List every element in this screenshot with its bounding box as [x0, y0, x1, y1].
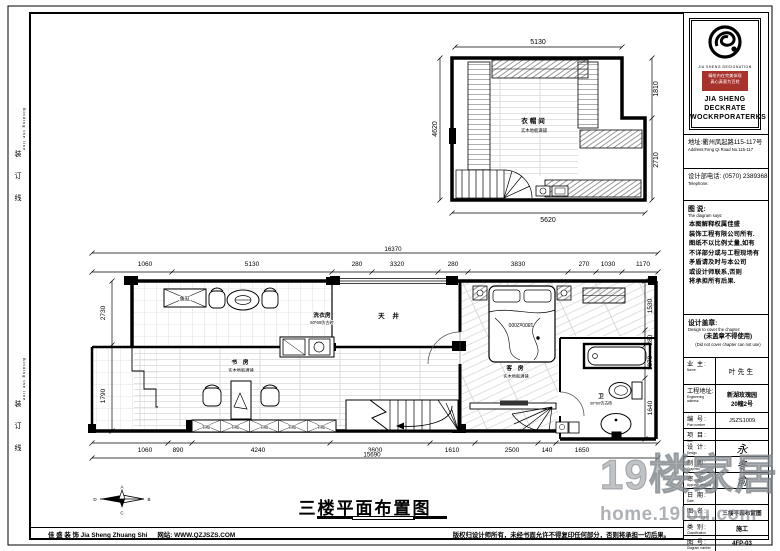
dim-label: 1170	[636, 261, 650, 268]
dim-label: 890	[173, 447, 184, 454]
address-cn: 地址:衢州凤起路115-117号	[684, 138, 768, 147]
study-label: 书 房	[231, 358, 250, 366]
logo-frame: JIA SHENG DESIGNATION 精绘内在完美体现 真心真意为百姓 J…	[689, 18, 761, 130]
bookcase-label: 书柜	[202, 424, 210, 431]
dim-label: 280	[448, 261, 459, 268]
tb-row-diagram-number: 图 号:Diagram number 4FP-03	[684, 536, 768, 551]
site-label: 工程地址:	[687, 386, 715, 395]
drawing-sheet: 衣帽间 实木地板满铺 5130 5620 4620 1810 2710	[0, 0, 780, 551]
dim-label: 2710	[653, 152, 660, 168]
tb-row-figure-name: 图 名:Name for figure 三楼平面布置图	[684, 505, 768, 521]
notes-line: 或设计师联系,否则	[684, 268, 768, 277]
compass-n: A	[120, 485, 123, 490]
dim-label: 1030	[601, 261, 616, 268]
guest-floor-label: 实木地板满铺	[503, 373, 528, 380]
phone-cn: 设计部电话: (0570) 2389368	[684, 172, 768, 181]
footer-bar: 佳 盛 装 饰 Jia Sheng Zhuang Shi 网站: WWW.QZJ…	[30, 527, 684, 540]
notes-line: 装饰工程有限公司所有.	[684, 230, 768, 239]
phone-section: 设计部电话: (0570) 2389368 Telephone:	[684, 169, 768, 201]
bookcase-label: 书柜	[231, 424, 239, 431]
sink	[601, 414, 631, 439]
bath-floor-label: 30*60仿古砖	[590, 400, 612, 406]
logo-slogan: 精绘内在完美体现 真心真意为百姓	[702, 71, 748, 91]
row-value: JSZS1009	[716, 413, 768, 428]
bookcase: 书柜 书柜 书柜 书柜 书柜	[192, 420, 336, 432]
dim-label: 5130	[245, 261, 260, 268]
north-compass: A B C D	[93, 485, 150, 516]
seal-title-cn: 设计盖章:	[684, 315, 768, 327]
scale-bar-segment	[352, 516, 415, 520]
notes-line: 不详部分或与工程现场有	[684, 249, 768, 258]
seal-note-cn: (未盖章不得使用)	[684, 332, 768, 341]
dim-label: 1530	[647, 298, 654, 313]
wardrobe-right	[580, 130, 642, 148]
notes-section: 图 说: The diagram says: 本图解释权属佳盛 装饰工程有限公司…	[684, 201, 768, 315]
notes-line: 矛盾请及时与本公司	[684, 258, 768, 267]
dim-label: 5620	[540, 217, 556, 224]
washer-counter	[280, 337, 334, 357]
footer-copyright: 版权归设计师所有，未经书面允许不得复印任何部分，否则将承担一切后果。	[453, 530, 670, 539]
dim-label: 3830	[511, 261, 526, 268]
slogan-line2: 真心真意为百姓	[702, 79, 748, 85]
guest-wardrobe	[583, 288, 625, 303]
seal-note-en: (Did not cover chapter can not use)	[684, 342, 768, 347]
row-label: 图 号:	[687, 537, 715, 546]
binding-line-text-en: Binding the line	[22, 108, 27, 151]
bath-cabinet	[556, 422, 579, 433]
shelving-left	[468, 62, 490, 188]
fixture-box	[536, 186, 550, 196]
dim-label: 2730	[100, 305, 107, 320]
row-label-en: Date	[687, 499, 715, 503]
tb-row-approve: 审 定:Approve officially 俞	[684, 473, 768, 489]
title-block: JIA SHENG DESIGNATION 精绘内在完美体现 真心真意为百姓 J…	[684, 13, 768, 539]
dim-label: 1060	[138, 447, 153, 454]
tb-row-date: 日 期:Date	[684, 489, 768, 505]
row-value-signature: 俞	[716, 473, 768, 488]
closet-room-label: 衣帽间	[521, 116, 547, 125]
seal-section: 设计盖章: Design to cover the chapter: (未盖章不…	[684, 315, 768, 358]
row-label: 编 号:	[687, 414, 715, 423]
owner-label-en: Name:	[687, 368, 715, 372]
logo-subtitle: JIA SHENG DESIGNATION	[690, 65, 760, 69]
row-label: 日 期:	[687, 490, 715, 499]
site-value-1: 新湖玫瑰园	[727, 390, 757, 399]
tb-row-item: 项 目:Item	[684, 429, 768, 441]
laundry-label: 洗衣房	[313, 311, 331, 319]
row-value-signature: 永	[716, 441, 768, 456]
dim-label: 15690	[363, 452, 381, 459]
row-label: 项 目:	[687, 430, 715, 439]
dim-label: 1070	[647, 355, 654, 370]
main-plan: 鱼缸	[88, 246, 661, 461]
row-label: 制 图:	[687, 458, 715, 467]
sitting-area	[209, 288, 278, 310]
notes-line: 图纸不以比例丈量,如有	[684, 239, 768, 248]
toilet	[609, 382, 642, 399]
dim-label: 280	[647, 334, 654, 345]
footer-website: 网站: WWW.QZJSZS.COM	[157, 530, 235, 539]
dim-label: 1610	[445, 447, 460, 454]
main-stairs	[346, 400, 458, 430]
owner-value: 叶先生	[716, 358, 768, 384]
compass-s: C	[120, 511, 124, 516]
row-label-en: Diagram number	[687, 546, 715, 550]
row-value: 施工	[716, 521, 768, 535]
dim-label: 1650	[575, 447, 590, 454]
row-label-en: Classification	[687, 531, 715, 535]
fixture-box	[552, 186, 568, 196]
row-value	[716, 429, 768, 440]
tb-row-graphics: 制 图:Graphics 冬	[684, 457, 768, 473]
dim-label: 1060	[138, 261, 153, 268]
tb-row-category: 类 别:Classification 施工	[684, 521, 768, 536]
scale-bar-segment	[413, 516, 447, 519]
row-label: 设 计:	[687, 442, 715, 451]
tb-row-number: 编 号:Plan number JSZS1009	[684, 413, 768, 429]
row-label: 类 别:	[687, 522, 715, 531]
notes-title-en: The diagram says:	[684, 213, 768, 218]
dim-label: 3320	[390, 261, 405, 268]
shelving-right	[578, 62, 598, 128]
notes-title-cn: 图 说:	[684, 201, 768, 213]
bath-label: 卫	[598, 393, 604, 400]
dim-label: 1810	[653, 81, 660, 97]
row-value: 三楼平面布置图	[716, 505, 768, 520]
row-label-en: Design	[687, 451, 715, 455]
compass-w: D	[93, 497, 97, 502]
row-label: 图 名:	[687, 506, 715, 515]
owner-row: 业 主: Name: 叶先生	[684, 358, 768, 385]
upper-plan: 衣帽间 实木地板满铺 5130 5620 4620 1810 2710	[432, 39, 660, 224]
binding-line-text: 装 订 线	[12, 150, 22, 205]
bathtub	[584, 344, 650, 368]
notes-line: 本图解释权属佳盛	[684, 220, 768, 229]
logo-section: JIA SHENG DESIGNATION 精绘内在完美体现 真心真意为百姓 J…	[684, 13, 768, 135]
dim-label: 5130	[530, 39, 546, 46]
lightwell-label: 天 井	[378, 311, 402, 320]
row-label-en: Plan number	[687, 423, 715, 427]
site-row: 工程地址: Engineering address: 新湖玫瑰园 20幢2号	[684, 385, 768, 413]
study-floor-label: 实木地板满铺	[228, 367, 253, 374]
row-label-en: Name for figure	[687, 515, 715, 519]
bookcase-label: 书柜	[317, 424, 325, 431]
address-en: Address:Feng Qi Road No.115-117	[684, 147, 768, 152]
compass-e: B	[147, 497, 150, 502]
bookcase-label: 书柜	[288, 424, 296, 431]
closet-floor-label: 实木地板满铺	[521, 127, 547, 134]
dim-label: 270	[579, 261, 590, 268]
row-label-en: Graphics	[687, 467, 715, 471]
binding-line-text-en: Binding the line	[22, 358, 27, 401]
tb-row-design: 设 计:Design 永	[684, 441, 768, 457]
dim-label: 140	[542, 447, 553, 454]
window-band	[338, 277, 454, 285]
dim-label: 16370	[384, 246, 402, 253]
company-seal-icon	[705, 22, 745, 62]
footer-company: 佳 盛 装 饰 Jia Sheng Zhuang Shi	[48, 530, 147, 539]
dim-label: 4240	[251, 447, 266, 454]
notes-line: 将承担所有后果.	[684, 277, 768, 286]
row-value-signature: 冬	[716, 457, 768, 472]
company-name-1: JIA SHENG DECKRATE	[690, 95, 760, 113]
owner-label: 业 主:	[687, 359, 715, 368]
address-section: 地址:衢州凤起路115-117号 Address:Feng Qi Road No…	[684, 135, 768, 169]
row-label: 审 定:	[687, 474, 715, 483]
floorplan-canvas: 衣帽间 实木地板满铺 5130 5620 4620 1810 2710	[0, 0, 780, 551]
site-label-en: Engineering address:	[687, 395, 715, 403]
laundry-floor-label: 60*60仿古砖	[310, 319, 334, 326]
phone-en: Telephone:	[684, 181, 768, 186]
binding-line-text: 装 订 线	[12, 400, 22, 455]
row-value	[716, 489, 768, 504]
fish-tank-label: 鱼缸	[180, 295, 190, 303]
bookcase-label: 书柜	[260, 424, 268, 431]
column	[449, 128, 456, 144]
row-value: 4FP-03	[716, 536, 768, 551]
guest-label: 客 房	[505, 364, 525, 372]
dim-label: 1790	[100, 388, 107, 403]
dim-label: 2500	[505, 447, 520, 454]
dim-label: 1640	[647, 400, 654, 415]
bed-size-label: 1800x2000	[508, 321, 533, 327]
scale-bar-segment	[317, 516, 352, 519]
row-label-en: Approve officially	[687, 483, 715, 487]
dim-label: 280	[352, 261, 363, 268]
dim-label: 4620	[432, 121, 439, 137]
closet-floor	[490, 78, 578, 176]
site-value-2: 20幢2号	[731, 399, 753, 408]
company-name-2: WOCKRPORATERKS	[690, 113, 760, 122]
